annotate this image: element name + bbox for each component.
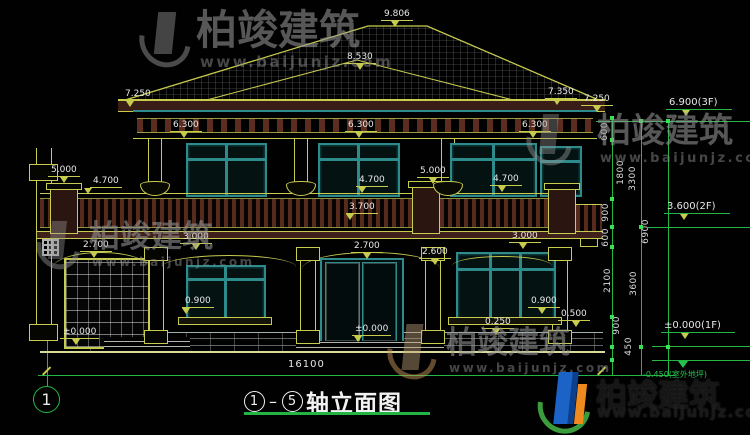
vdim: 600	[600, 122, 610, 141]
level-marker: 5.000	[417, 166, 449, 178]
level-marker: 5.000	[48, 165, 80, 177]
balcony-pier-left	[50, 186, 78, 234]
grip	[610, 315, 614, 319]
column-2f	[294, 138, 308, 184]
title-underline	[244, 412, 430, 415]
vdim: 2100	[603, 268, 613, 293]
level-marker: 2.700	[80, 240, 112, 252]
vdim: 1800	[616, 160, 626, 185]
window-2f-right	[450, 143, 537, 197]
window-sill	[178, 317, 272, 325]
window-mullion	[225, 145, 228, 195]
pilaster-1f	[300, 259, 316, 331]
grip	[610, 116, 614, 120]
watermark-brand: 柏竣建筑	[597, 114, 733, 148]
balcony-railing	[40, 193, 576, 233]
level-marker: 0.900	[528, 296, 560, 308]
grip	[610, 245, 614, 249]
pilaster-base	[144, 330, 168, 344]
cad-elevation-drawing: 9.806 8.530 7.250 7.350 7.250 6.300 6.30…	[0, 0, 750, 435]
level-marker: 3.000	[180, 232, 212, 244]
vdim: 3600	[629, 271, 639, 296]
grip	[639, 119, 643, 123]
level-line-ground	[652, 360, 750, 361]
level-marker: 7.350	[545, 87, 577, 99]
grip	[666, 345, 670, 349]
pilaster-1f	[425, 259, 441, 331]
side-balcony-railing	[576, 204, 602, 234]
level-marker: 6.300	[170, 120, 202, 132]
level-marker: 7.250	[581, 94, 613, 106]
vdim: 900	[601, 203, 611, 222]
level-line-2f	[648, 227, 750, 228]
brand-site: www.baijunjz.com	[597, 403, 750, 421]
grip	[666, 119, 670, 123]
level-marker: 0.250	[482, 317, 514, 329]
level-marker: 7.250	[122, 89, 154, 101]
window-1f-left	[186, 265, 266, 321]
window-transom	[320, 158, 398, 161]
axis-circle-start: 1	[244, 391, 265, 412]
watermark-site: www.baijunjz.com	[449, 362, 612, 374]
level-line-3f	[596, 121, 750, 122]
level-marker: 4.700	[90, 176, 122, 188]
level-marker: 9.806	[381, 9, 413, 21]
level-marker: 8.530	[344, 52, 376, 64]
pilaster-capital	[296, 247, 320, 261]
pilaster-base	[548, 330, 572, 344]
pilaster-base	[296, 330, 320, 344]
column-2f	[148, 138, 162, 184]
grip	[610, 225, 614, 229]
datum-line	[38, 375, 675, 376]
window-transom	[542, 160, 580, 163]
ground-line	[40, 351, 605, 353]
level-marker: 4.700	[356, 175, 388, 187]
floor-level-1f: ±0.000(1F)	[661, 321, 735, 333]
window-transom	[188, 278, 264, 281]
pilaster-capital	[144, 247, 168, 261]
porch-column-base	[29, 324, 58, 341]
dim-chain-middle	[641, 121, 642, 376]
level-marker: 2.700	[351, 241, 383, 253]
level-marker: 0.900	[182, 296, 214, 308]
level-marker: 0.500	[558, 309, 590, 321]
vdim: 3300	[628, 166, 638, 191]
grip	[639, 225, 643, 229]
level-marker: 3.000	[509, 231, 541, 243]
floor-level-3f: 6.900(3F)	[666, 98, 732, 110]
grip	[610, 197, 614, 201]
window-2f-left	[186, 143, 267, 197]
window-transom	[458, 268, 554, 271]
level-marker: ±0.000	[60, 327, 99, 339]
dim-chain-outer	[668, 121, 669, 376]
railing-balusters	[40, 199, 576, 227]
pilaster-1f	[148, 259, 164, 331]
window-mullion	[224, 267, 227, 319]
overall-width-dim: 16100	[288, 359, 325, 370]
level-marker: 6.300	[519, 120, 551, 132]
floor-level-2f: 3.600(2F)	[664, 202, 730, 214]
level-marker: 6.300	[345, 120, 377, 132]
pilaster-base	[421, 330, 445, 344]
window-mullion	[492, 145, 495, 195]
level-marker: 3.700	[346, 202, 378, 214]
window-transom	[188, 158, 265, 161]
grip	[610, 138, 614, 142]
level-marker: 4.700	[490, 174, 522, 186]
grip	[610, 358, 614, 362]
dash: –	[269, 392, 278, 411]
level-marker: 2.600	[419, 247, 451, 259]
bay-arch	[162, 255, 296, 267]
axis-bubble-1: 1	[33, 386, 60, 413]
grip	[610, 345, 614, 349]
vdim: 600	[601, 228, 611, 247]
porch-arch	[52, 252, 150, 269]
vdim: 6900	[641, 219, 651, 244]
ground-level-triangle	[678, 361, 688, 368]
vdim: 450	[624, 337, 634, 356]
axis-circle-end: 5	[282, 391, 303, 412]
pilaster-capital	[548, 247, 572, 261]
axis-line-1	[47, 340, 48, 386]
grip	[639, 345, 643, 349]
balcony-pier-right	[548, 186, 576, 234]
window-transom	[452, 158, 535, 161]
level-marker: ±0.000	[352, 324, 391, 336]
